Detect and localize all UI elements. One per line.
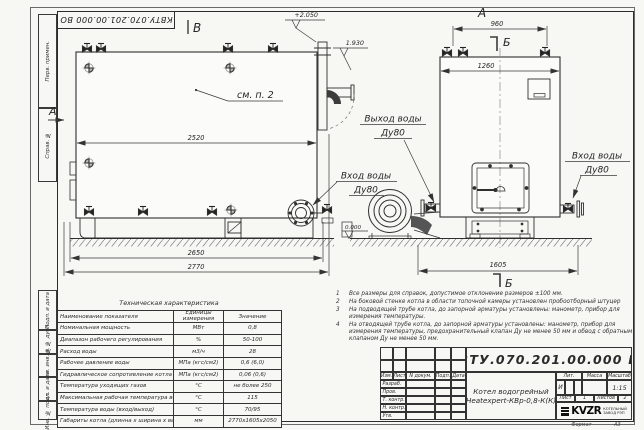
tb-empty-cell — [406, 404, 435, 412]
tech-cell-value: 70/95 — [224, 404, 282, 416]
tech-row: Максимальная рабочая температура воды°С1… — [58, 392, 282, 404]
tech-cell-name: Гидравлическое сопротивление котла — [58, 369, 174, 381]
tech-row: Расход водым3/ч28 — [58, 346, 282, 358]
tech-cell-unit: МПа (кгс/см2) — [174, 369, 224, 381]
tech-cell-value: 28 — [224, 346, 282, 358]
tech-cell-name: Максимальная рабочая температура воды — [58, 392, 174, 404]
tech-cell-unit: м3/ч — [174, 346, 224, 358]
tech-cell-unit: °С — [174, 404, 224, 416]
tech-cell-unit: МПа (кгс/см2) — [174, 357, 224, 369]
side-bracket — [70, 180, 76, 200]
valve-icon — [269, 44, 278, 53]
tb-empty-cell — [435, 347, 451, 360]
tech-cell-name: Номинальная мощность — [58, 323, 174, 335]
tech-cell-name: Рабочее давление воды — [58, 357, 174, 369]
format-label: Формат — [571, 422, 591, 428]
tb-mass-label: Масса — [582, 372, 607, 380]
tb-logo-cell: KVZR КОТЕЛЬНЫЙ ЗАВОД РЭП — [556, 402, 632, 420]
tb-col-podp: Подп. — [435, 372, 451, 380]
tech-cell-name: Температура уходящих газов — [58, 381, 174, 393]
tb-empty-cell — [406, 347, 435, 360]
valve-icon — [459, 48, 468, 57]
product-name-line1: Котел водогрейный — [473, 387, 548, 396]
tb-sheets-value: 2 — [618, 395, 632, 402]
inlet-right-label: Вход воды — [572, 152, 622, 162]
tech-cell-value: не более 250 — [224, 381, 282, 393]
tech-cell-name: Расход воды — [58, 346, 174, 358]
see-note-label: см. п. 2 — [237, 90, 274, 101]
tb-empty-cell — [393, 360, 406, 373]
tech-header-row: Наименование показателя Единицы измерени… — [58, 311, 282, 323]
kvzr-logo: KVZR КОТЕЛЬНЫЙ ЗАВОД РЭП — [561, 405, 627, 417]
tb-mass-value — [582, 380, 607, 395]
section-label-b-bottom: Б — [505, 277, 513, 290]
inlet-right-dn: Ду80 — [584, 166, 609, 176]
tech-cell-value: 0,8 — [224, 323, 282, 335]
tech-col-unit: Единицы измерения — [174, 311, 224, 323]
outlet-label: Выход воды — [364, 115, 421, 125]
tb-empty-cell — [380, 347, 393, 360]
kvzr-logo-text: KVZR — [571, 405, 601, 417]
tb-empty-cell — [380, 360, 393, 373]
level-zero: 0.000 — [345, 225, 361, 231]
tb-empty-cell — [406, 380, 435, 388]
dim-960: 960 — [491, 20, 504, 28]
tb-empty-cell — [435, 388, 451, 396]
tech-table-title: Техническая характеристика — [57, 299, 281, 310]
flue-duct — [314, 42, 354, 130]
logo-sub-line2: ЗАВОД РЭП — [603, 411, 627, 415]
section-label-b-top: Б — [503, 36, 511, 49]
tech-row: Температура уходящих газов°Сне более 250 — [58, 381, 282, 393]
tb-scale-value: 1:15 — [607, 380, 632, 395]
title-block: Изм. Лист N докум. Подп. Дата Разраб. Пр… — [380, 347, 632, 420]
note-text: Все размеры для справок, допустимое откл… — [349, 291, 636, 298]
tb-empty-cell — [451, 412, 466, 420]
tech-row: Гидравлическое сопротивление котлаМПа (к… — [58, 369, 282, 381]
tech-cell-name: Температура воды (вход/выход) — [58, 404, 174, 416]
tech-cell-name: Габариты котла (длинна х ширина х высота… — [58, 415, 174, 427]
valve-icon — [83, 44, 92, 53]
view-label-a: А — [477, 6, 486, 20]
tb-doc-number: КВТУ.070.201.00.000 ВО — [466, 347, 632, 372]
tech-cell-name: Диапазон рабочего регулирования — [58, 334, 174, 346]
note-text: На отводящей трубе котла, до запорной ар… — [349, 322, 636, 343]
tb-lit-value: И — [556, 380, 565, 395]
tb-empty-cell — [435, 360, 451, 373]
tb-row-utv: Утв. — [380, 412, 406, 420]
notes-block: 1Все размеры для справок, допустимое отк… — [336, 291, 636, 344]
format-value: А3 — [614, 422, 621, 428]
valve-icon — [323, 205, 332, 214]
format-row: Формат А3 — [560, 422, 632, 428]
tech-cell-value: 50-100 — [224, 334, 282, 346]
product-name-line2: Heatexpert-КВр-0,8-К(К) — [466, 396, 556, 405]
tb-product-name: Котел водогрейный Heatexpert-КВр-0,8-К(К… — [466, 372, 556, 420]
tb-empty-cell — [435, 396, 451, 404]
valve-icon — [443, 48, 452, 57]
tb-row-tkontr: Т. контр. — [380, 396, 406, 404]
tb-empty-cell — [574, 380, 582, 395]
boiler-base — [80, 218, 313, 238]
tb-empty-cell — [435, 380, 451, 388]
tb-empty-cell — [406, 396, 435, 404]
tech-row: Габариты котла (длинна х ширина х высота… — [58, 415, 282, 427]
tb-scale-label: Масштаб — [607, 372, 632, 380]
tech-table: Наименование показателя Единицы измерени… — [57, 310, 282, 428]
tb-empty-cell — [451, 388, 466, 396]
tech-cell-value: 0,6 (6,0) — [224, 357, 282, 369]
tb-col-izm: Изм. — [380, 372, 393, 380]
tb-empty-cell — [451, 396, 466, 404]
valve-icon — [224, 44, 233, 53]
front-view — [421, 48, 584, 249]
note-number: 4 — [336, 322, 349, 343]
dim-1260: 1260 — [478, 62, 495, 70]
tech-characteristics: Техническая характеристика Наименование … — [57, 299, 281, 428]
tb-row-razrab: Разраб. — [380, 380, 406, 388]
note-item: 4На отводящей трубе котла, до запорной а… — [336, 322, 636, 343]
tb-lit-label: Лит. — [556, 372, 582, 380]
note-text: На подводящей трубе котла, до запорной а… — [349, 307, 636, 321]
tech-row: Рабочее давление водыМПа (кгс/см2)0,6 (6… — [58, 357, 282, 369]
tb-row-nkontr: Н. контр. — [380, 404, 406, 412]
tb-empty-cell — [451, 404, 466, 412]
dim-1605: 1605 — [490, 261, 507, 269]
tb-empty-cell — [406, 412, 435, 420]
note-number: 3 — [336, 307, 349, 321]
drawing-sheet: Перв. примен. Справ. № Подп. и дата Инв.… — [0, 0, 644, 430]
tb-empty-cell — [451, 380, 466, 388]
tb-empty-cell — [565, 380, 574, 395]
tech-cell-unit: мм — [174, 415, 224, 427]
dim-2520: 2520 — [188, 134, 205, 142]
tb-empty-cell — [435, 404, 451, 412]
tb-empty-cell — [393, 347, 406, 360]
tech-row: Диапазон рабочего регулирования%50-100 — [58, 334, 282, 346]
tb-empty-cell — [451, 347, 466, 360]
inlet-dn: Ду80 — [353, 186, 378, 196]
tb-col-data: Дата — [451, 372, 466, 380]
tb-empty-cell — [435, 412, 451, 420]
inlet-label: Вход воды — [341, 172, 391, 182]
dim-2650: 2650 — [188, 249, 205, 257]
note-item: 1Все размеры для справок, допустимое отк… — [336, 291, 636, 298]
side-bracket — [70, 162, 76, 175]
note-item: 3На подводящей трубе котла, до запорной … — [336, 307, 636, 321]
tb-sheets-label: Листов — [594, 395, 618, 402]
tb-row-prov: Пров. — [380, 388, 406, 396]
kvzr-logo-icon — [561, 407, 569, 416]
tech-row: Температура воды (вход/выход)°С70/95 — [58, 404, 282, 416]
elevation-flue: 1.930 — [346, 39, 364, 47]
note-number: 1 — [336, 291, 349, 298]
note-text: На боковой стенке котла в области топочн… — [349, 299, 636, 306]
note-number: 2 — [336, 299, 349, 306]
tb-empty-cell — [451, 360, 466, 373]
tech-cell-unit: °С — [174, 381, 224, 393]
tb-sheet-value: 1 — [575, 395, 594, 402]
tech-cell-unit: % — [174, 334, 224, 346]
tb-col-ndokum: N докум. — [406, 372, 435, 380]
tech-cell-unit: °С — [174, 392, 224, 404]
ground — [70, 239, 592, 247]
valve-icon — [541, 48, 550, 57]
tb-sheet-label: Лист — [556, 395, 575, 402]
tb-col-list: Лист — [393, 372, 406, 380]
tb-empty-cell — [406, 388, 435, 396]
tech-cell-value: 115 — [224, 392, 282, 404]
tech-cell-value: 0,06 (0,6) — [224, 369, 282, 381]
outlet-dn: Ду80 — [380, 129, 405, 139]
note-item: 2На боковой стенке котла в области топоч… — [336, 299, 636, 306]
section-label-a: А — [48, 105, 57, 118]
tech-cell-value: 2770х1605х2050 — [224, 415, 282, 427]
tech-col-name: Наименование показателя — [58, 311, 174, 323]
tech-col-value: Значение — [224, 311, 282, 323]
kvzr-logo-subtext: КОТЕЛЬНЫЙ ЗАВОД РЭП — [603, 407, 627, 415]
tech-cell-unit: МВт — [174, 323, 224, 335]
tech-row: Номинальная мощностьМВт0,8 — [58, 323, 282, 335]
dim-2770: 2770 — [188, 263, 205, 271]
view-label-v: В — [193, 21, 201, 35]
side-view — [70, 42, 354, 238]
tb-empty-cell — [406, 360, 435, 373]
valve-icon — [97, 44, 106, 53]
elevation-top: +2.050 — [294, 11, 318, 19]
